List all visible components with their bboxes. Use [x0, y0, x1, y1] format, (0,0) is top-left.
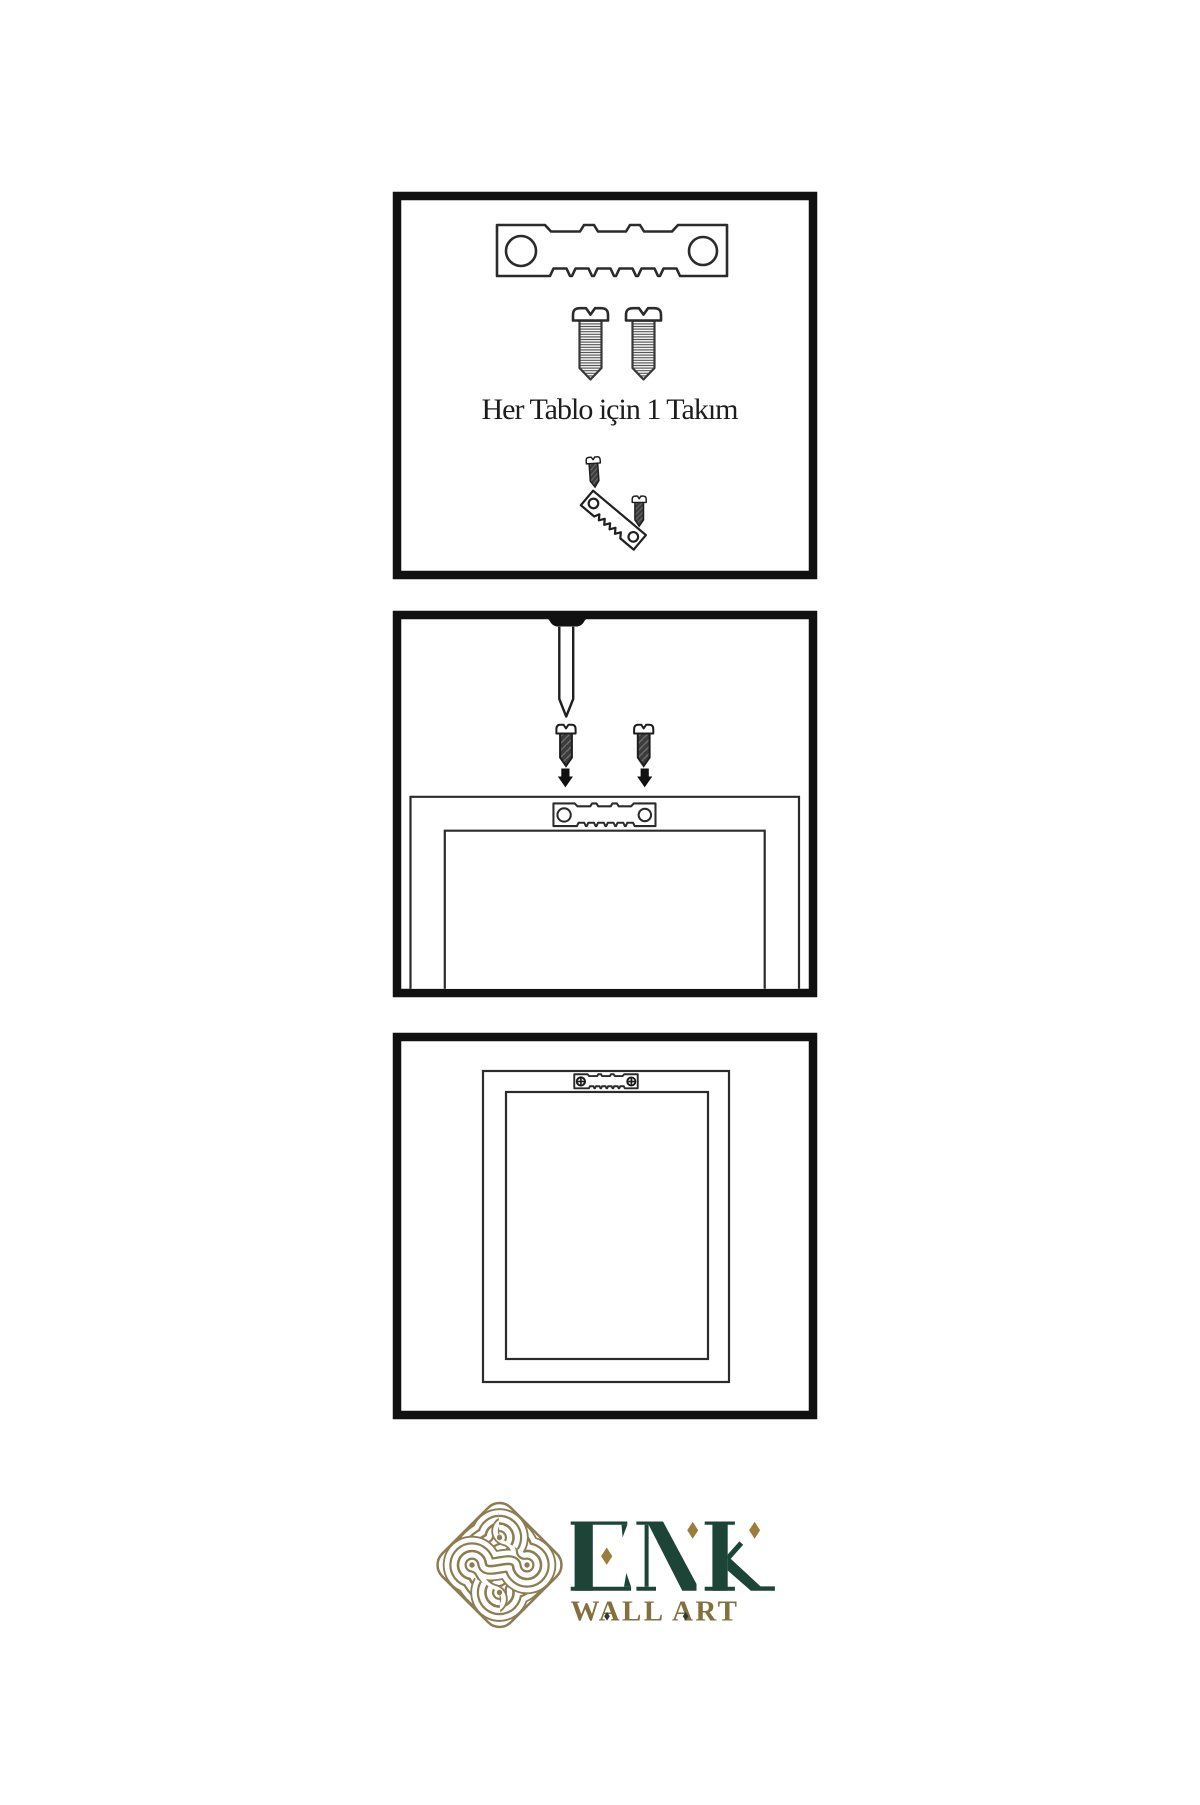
svg-text:WALL ART: WALL ART: [571, 1596, 739, 1628]
svg-text:Her Tablo için 1 Takım: Her Tablo için 1 Takım: [482, 393, 739, 426]
